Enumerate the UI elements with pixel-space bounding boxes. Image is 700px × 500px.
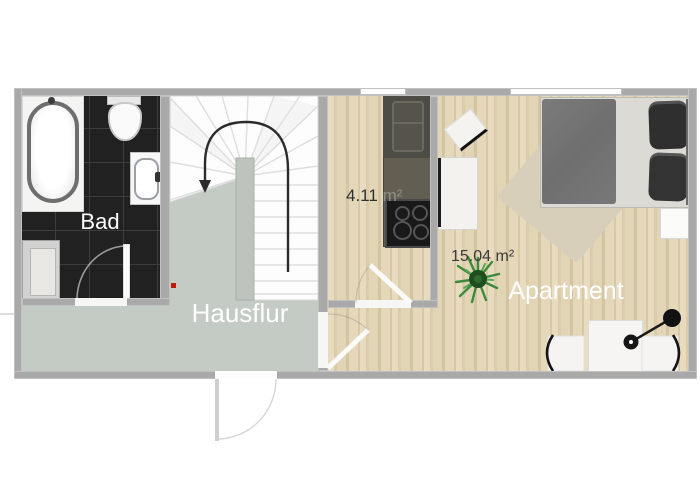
wall-kitchen-right — [430, 96, 438, 308]
bathtub — [27, 101, 79, 203]
bed-pillow — [648, 100, 689, 149]
cooktop-burner — [395, 206, 410, 221]
kitchen-area-label: 4.11 m² — [346, 186, 402, 206]
kitchen-door — [352, 255, 416, 307]
bathroom-door-leaf — [123, 244, 130, 302]
red-marker — [171, 283, 176, 288]
wall-bathroom-right — [160, 96, 170, 306]
cooktop-burner — [393, 221, 412, 240]
apartment-label: Apartment — [500, 277, 632, 306]
floor-plan: Bad Hausflur 4.11 m² 15.04 m² Apartment — [0, 0, 700, 500]
stair-newel — [236, 158, 254, 300]
cooktop-burner — [412, 205, 428, 221]
living-area-label: 15.04 m² — [451, 248, 514, 266]
entrance-door-threshold — [215, 371, 277, 379]
bed-pillow — [648, 152, 689, 201]
staircase — [170, 96, 318, 300]
window — [510, 88, 622, 95]
entrance-door — [213, 379, 279, 449]
exterior-line — [0, 313, 14, 315]
kitchen-sink — [392, 101, 424, 152]
kitchen-sink-divider — [394, 122, 422, 124]
wall-left — [14, 88, 22, 379]
bathroom-cabinet-top — [30, 248, 56, 296]
wall-right — [688, 88, 697, 379]
window — [360, 88, 406, 95]
bathroom-label: Bad — [72, 209, 128, 235]
bathroom-door-arc — [75, 244, 127, 300]
apartment-entry-door — [324, 308, 376, 374]
cooktop-burner — [413, 224, 429, 240]
chair — [542, 334, 586, 372]
bathroom-door-threshold — [75, 298, 127, 306]
wardrobe — [438, 157, 478, 230]
kitchen-area-unit: m² — [383, 186, 403, 205]
bathtub-tap-icon — [48, 97, 55, 104]
bed-duvet — [542, 99, 616, 204]
wardrobe-front-line — [438, 158, 441, 227]
hallway-label: Hausflur — [186, 298, 294, 329]
floor-lamp-icon — [620, 304, 696, 354]
kitchen-area-value: 4.11 — [346, 186, 378, 205]
